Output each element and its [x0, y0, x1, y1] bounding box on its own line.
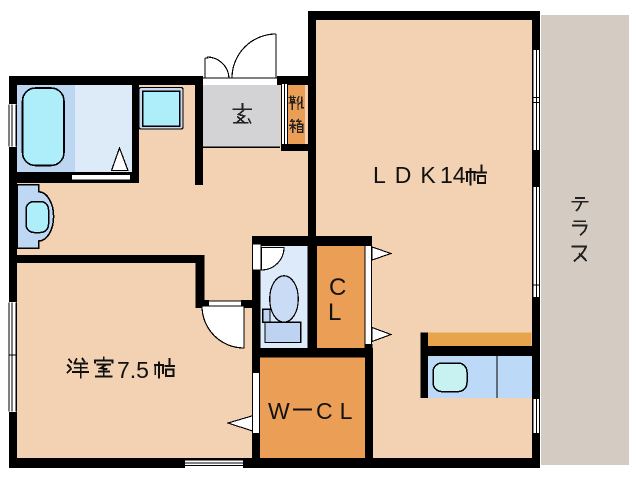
svg-text:L: L — [328, 299, 341, 326]
svg-text:CL: CL — [316, 398, 359, 424]
svg-text:C: C — [329, 274, 346, 301]
svg-text:14: 14 — [440, 162, 466, 188]
svg-text:W: W — [268, 398, 290, 424]
svg-text:LDK: LDK — [373, 162, 445, 188]
svg-text:7.5: 7.5 — [117, 357, 149, 383]
